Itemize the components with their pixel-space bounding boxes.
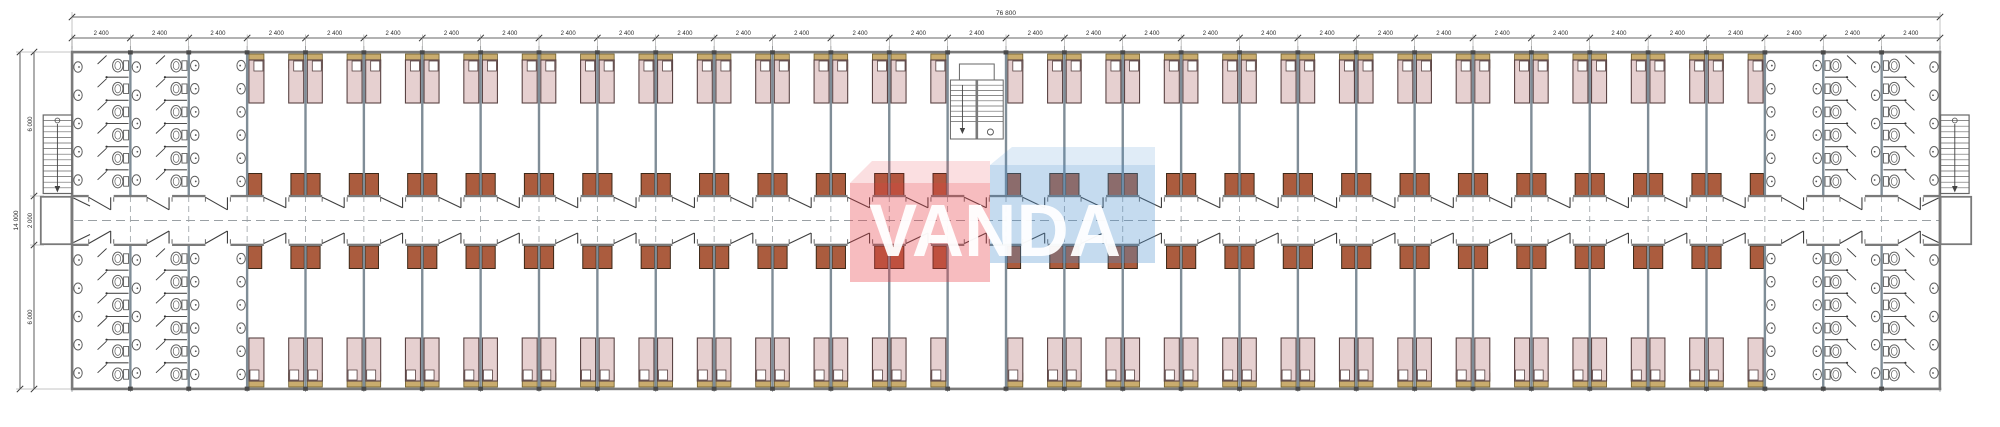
desk [249, 54, 264, 60]
pillow [775, 370, 784, 380]
partition-wall [188, 52, 190, 197]
partition-wall [246, 52, 248, 197]
toilet-tank [182, 153, 187, 163]
partition-wall [1822, 52, 1824, 197]
pillow [312, 61, 321, 71]
wardrobe [1533, 246, 1546, 269]
desk [289, 381, 304, 387]
desk [1533, 54, 1548, 60]
desk [1281, 381, 1296, 387]
pillow [1417, 370, 1426, 380]
toilet-tank [124, 323, 129, 333]
pillow [1520, 61, 1529, 71]
pillow [483, 370, 492, 380]
corridor-wall-segment [289, 244, 322, 246]
partition-wall [830, 245, 832, 390]
partition-wall [1413, 245, 1415, 390]
desk [658, 54, 673, 60]
partition-wall [1413, 52, 1415, 197]
desk [1456, 54, 1471, 60]
partition-wall [713, 52, 715, 197]
dim-left-seg-mid-label: 2 000 [28, 212, 34, 228]
wardrobe [1416, 174, 1429, 197]
corridor-wall-segment [347, 195, 380, 197]
desk [464, 54, 479, 60]
corridor-wall-segment [230, 195, 263, 197]
pillow [425, 370, 434, 380]
dim-bay-label: 2 400 [327, 31, 343, 37]
desk [756, 381, 771, 387]
pillow [1632, 370, 1641, 380]
pillow [487, 61, 496, 71]
corridor-wall-segment [1281, 244, 1314, 246]
pillow [1593, 370, 1602, 380]
pillow [604, 61, 613, 71]
pillow [410, 61, 419, 71]
pillow [308, 370, 317, 380]
sink [237, 369, 245, 379]
sink [1813, 130, 1821, 140]
partition-wall [1238, 245, 1240, 390]
pillow [644, 61, 653, 71]
pillow [1188, 61, 1197, 71]
partition-wall [1530, 245, 1532, 390]
sink [237, 323, 245, 333]
pillow [1457, 370, 1466, 380]
toilet-tank [124, 153, 129, 163]
corridor-wall-segment [581, 244, 614, 246]
sink [237, 107, 245, 117]
desk [1592, 54, 1607, 60]
pillow [1534, 370, 1543, 380]
pillow [838, 61, 847, 71]
partition-wall [771, 52, 773, 197]
desk [1475, 381, 1490, 387]
wardrobe [657, 174, 670, 197]
desk [1592, 381, 1607, 387]
pillow [1053, 61, 1062, 71]
partition-wall [1880, 52, 1882, 197]
wardrobe [540, 174, 553, 197]
sink [74, 118, 82, 128]
corridor-wall-segment [814, 195, 847, 197]
pillow [663, 61, 672, 71]
wardrobe [700, 246, 713, 269]
wardrobe [408, 174, 421, 197]
wardrobe [524, 246, 537, 269]
desk [366, 381, 381, 387]
wardrobe [408, 246, 421, 269]
sink [1813, 84, 1821, 94]
dim-bay-label: 2 400 [502, 31, 518, 37]
sink [1767, 107, 1775, 117]
sink [132, 62, 140, 72]
dim-bay-label: 2 400 [386, 31, 402, 37]
wardrobe [1225, 174, 1238, 197]
sink [74, 255, 82, 265]
sink [1767, 300, 1775, 310]
pillow [1403, 61, 1412, 71]
wardrobe [1649, 246, 1662, 269]
sink [1930, 368, 1938, 378]
pillow [523, 370, 532, 380]
desk [482, 54, 497, 60]
sink [1871, 62, 1879, 72]
sink [1813, 323, 1821, 333]
desk [1690, 381, 1705, 387]
dim-bay-label: 2 400 [94, 31, 110, 37]
desk [405, 381, 420, 387]
dim-top-total-label: 76 800 [996, 10, 1016, 17]
corridor-wall-segment [1690, 244, 1723, 246]
pillow [1071, 61, 1080, 71]
desk [1748, 381, 1763, 387]
toilet-tank [182, 130, 187, 140]
sink [1813, 60, 1821, 70]
dim-bay-label: 2 400 [1787, 31, 1803, 37]
sink [1767, 60, 1775, 70]
wardrobe [700, 174, 713, 197]
partition-wall [1238, 52, 1240, 197]
corridor-wall-segment [1923, 195, 1940, 197]
dim-bay-label: 2 400 [444, 31, 460, 37]
partition-wall [596, 245, 598, 390]
pillow [1636, 61, 1645, 71]
sink [74, 62, 82, 72]
desk [1573, 54, 1588, 60]
wardrobe [1182, 246, 1195, 269]
pillow [1107, 370, 1116, 380]
pillow [527, 61, 536, 71]
wardrobe [1517, 246, 1530, 269]
wardrobe [423, 174, 436, 197]
pillow [702, 61, 711, 71]
desk [1631, 54, 1646, 60]
wardrobe [1634, 246, 1647, 269]
wardrobe [1708, 246, 1721, 269]
pillow [586, 61, 595, 71]
dim-bay-label: 2 400 [1144, 31, 1160, 37]
partition-wall [188, 245, 190, 390]
sink [132, 340, 140, 350]
wardrobe [1474, 174, 1487, 197]
sink [237, 153, 245, 163]
desk [1358, 54, 1373, 60]
desk [405, 54, 420, 60]
desk [581, 381, 596, 387]
corridor-wall-segment [347, 244, 380, 246]
partition-wall [1822, 245, 1824, 390]
desk [814, 381, 829, 387]
desk [1106, 54, 1121, 60]
wardrobe [482, 174, 495, 197]
partition-wall [538, 245, 540, 390]
pillow [1695, 61, 1704, 71]
dim-bay-label: 2 400 [1436, 31, 1452, 37]
desk [1008, 381, 1023, 387]
pillow [757, 370, 766, 380]
sink [191, 107, 199, 117]
corridor-wall-segment [1281, 195, 1314, 197]
dim-bay-label: 2 400 [1203, 31, 1219, 37]
wardrobe [1575, 174, 1588, 197]
wardrobe [1357, 246, 1370, 269]
desk [541, 381, 556, 387]
entry-vestibule-left [41, 197, 72, 244]
dim-bay-label: 2 400 [1845, 31, 1861, 37]
wardrobe [832, 246, 845, 269]
desk [716, 54, 731, 60]
toilet-tank [1825, 323, 1830, 333]
dim-bay-label: 2 400 [1553, 31, 1569, 37]
sink [237, 253, 245, 263]
desk [1223, 54, 1238, 60]
desk [1008, 54, 1023, 60]
corridor-wall-segment [814, 244, 847, 246]
corridor-wall-segment [1807, 195, 1840, 197]
partition-wall [1297, 245, 1299, 390]
desk [1066, 381, 1081, 387]
sink [74, 175, 82, 185]
wardrobe [641, 174, 654, 197]
wardrobe [599, 246, 612, 269]
desk [1183, 54, 1198, 60]
wardrobe [365, 174, 378, 197]
desk [482, 381, 497, 387]
sink [1871, 175, 1879, 185]
toilet-tank [1883, 130, 1888, 140]
wardrobe [758, 246, 771, 269]
sink [237, 84, 245, 94]
vanda-watermark: VANDA [850, 147, 1155, 282]
sink [1930, 62, 1938, 72]
desk [599, 54, 614, 60]
dim-bay-label: 2 400 [1261, 31, 1277, 37]
sink [1871, 118, 1879, 128]
pillow [1282, 370, 1291, 380]
sink [74, 283, 82, 293]
corridor-wall-segment [1456, 195, 1489, 197]
corridor-wall-segment [1164, 244, 1197, 246]
desk [1631, 381, 1646, 387]
desk [872, 381, 887, 387]
partition-wall [1472, 245, 1474, 390]
sink [191, 323, 199, 333]
wardrobe [816, 174, 829, 197]
corridor-wall-segment [1865, 195, 1898, 197]
pillow [779, 61, 788, 71]
corridor-wall-segment [1340, 244, 1373, 246]
dim-bay-label: 2 400 [1320, 31, 1336, 37]
toilet-tank [1825, 177, 1830, 187]
corridor-wall-segment [114, 244, 147, 246]
sink [1930, 118, 1938, 128]
wardrobe [1575, 246, 1588, 269]
corridor-wall-segment [1164, 195, 1197, 197]
corridor-wall-segment [114, 195, 147, 197]
dim-bay-label: 2 400 [677, 31, 693, 37]
toilet-tank [182, 300, 187, 310]
desk [1300, 381, 1315, 387]
sink [191, 346, 199, 356]
toilet-tank [1883, 277, 1888, 287]
partition-wall [1647, 245, 1649, 390]
pillow [1301, 370, 1310, 380]
dim-bay-label: 2 400 [269, 31, 285, 37]
dim-bay-label: 2 400 [794, 31, 810, 37]
partition-wall [129, 52, 131, 197]
entry-vestibule-right [1941, 197, 1972, 244]
sink [1871, 340, 1879, 350]
wardrobe [1167, 246, 1180, 269]
pillow [1749, 370, 1758, 380]
wardrobe [1591, 174, 1604, 197]
pillow [1651, 370, 1660, 380]
pillow [717, 370, 726, 380]
wardrobe [1241, 174, 1254, 197]
desk [1456, 381, 1471, 387]
desk [1281, 54, 1296, 60]
partition-wall [363, 52, 365, 197]
wardrobe [599, 174, 612, 197]
dim-bay-label: 2 400 [1028, 31, 1044, 37]
partition-wall [1355, 245, 1357, 390]
desk [1515, 381, 1530, 387]
corridor-wall-segment [1631, 244, 1664, 246]
wardrobe [1342, 174, 1355, 197]
sink [1767, 323, 1775, 333]
toilet-tank [1883, 370, 1888, 380]
sink [1813, 153, 1821, 163]
desk [1650, 54, 1665, 60]
desk [1223, 381, 1238, 387]
wardrobe [365, 246, 378, 269]
pillow [1691, 370, 1700, 380]
wardrobe [307, 246, 320, 269]
desk [307, 381, 322, 387]
corridor-wall-segment [1690, 195, 1723, 197]
sink [132, 255, 140, 265]
partition-wall [655, 52, 657, 197]
pillow [600, 370, 609, 380]
sink [191, 253, 199, 263]
wardrobe [1400, 246, 1413, 269]
sink [1813, 300, 1821, 310]
pillow [877, 61, 886, 71]
dim-bay-label: 2 400 [1495, 31, 1511, 37]
pillow [1753, 61, 1762, 71]
wardrobe [1283, 174, 1296, 197]
desk [1164, 54, 1179, 60]
watermark-red-top-face [850, 161, 990, 183]
toilet-tank [182, 254, 187, 264]
sink [1813, 176, 1821, 186]
pillow [406, 370, 415, 380]
middle-stair-landing [959, 64, 994, 80]
dim-bay-label: 2 400 [853, 31, 869, 37]
pillow [1516, 370, 1525, 380]
pillow [254, 61, 263, 71]
wardrobe [1692, 174, 1705, 197]
desk [1183, 381, 1198, 387]
sink [237, 277, 245, 287]
desk [1048, 54, 1063, 60]
corridor-wall-segment [1807, 244, 1840, 246]
desk [1300, 54, 1315, 60]
pillow [896, 61, 905, 71]
desk [249, 381, 264, 387]
sink [1767, 130, 1775, 140]
toilet-tank [182, 346, 187, 356]
partition-wall [246, 245, 248, 390]
wardrobe [1342, 246, 1355, 269]
wardrobe [307, 174, 320, 197]
sink [1767, 277, 1775, 287]
corridor-wall-segment [1923, 244, 1940, 246]
sink [191, 84, 199, 94]
wardrobe [641, 246, 654, 269]
desk [891, 54, 906, 60]
partition-wall [1589, 245, 1591, 390]
corridor-wall-segment [1515, 244, 1548, 246]
sink [1767, 176, 1775, 186]
corridor-wall-segment [1340, 195, 1373, 197]
pillow [761, 61, 770, 71]
wardrobe [816, 246, 829, 269]
sink [1813, 277, 1821, 287]
dim-bay-label: 2 400 [969, 31, 985, 37]
partition-wall [421, 245, 423, 390]
corridor-wall-segment [464, 195, 497, 197]
corridor-wall-segment [72, 195, 89, 197]
partition-wall [771, 245, 773, 390]
sink [132, 368, 140, 378]
toilet-tank [124, 84, 129, 94]
toilet-tank [1825, 130, 1830, 140]
wardrobe [1182, 174, 1195, 197]
wardrobe [524, 174, 537, 197]
dim-bay-label: 2 400 [561, 31, 577, 37]
desk [774, 54, 789, 60]
toilet-tank [124, 177, 129, 187]
corridor-wall-segment [289, 195, 322, 197]
partition-wall [304, 245, 306, 390]
corridor-wall-segment [1865, 244, 1898, 246]
desk [639, 381, 654, 387]
toilet-tank [1883, 254, 1888, 264]
wardrobe [1750, 174, 1763, 197]
sink [74, 90, 82, 100]
toilet-tank [182, 177, 187, 187]
wardrobe [540, 246, 553, 269]
desk [833, 54, 848, 60]
sink [237, 176, 245, 186]
corridor-wall-segment [697, 244, 730, 246]
wardrobe [1416, 246, 1429, 269]
watermark-text: VANDA [869, 189, 1121, 272]
dim-bay-label: 2 400 [1086, 31, 1102, 37]
wardrobe [715, 246, 728, 269]
desk [307, 54, 322, 60]
partition-wall [1705, 52, 1707, 197]
partition-wall [1355, 52, 1357, 197]
pillow [1111, 61, 1120, 71]
toilet-tank [1825, 84, 1830, 94]
desk [541, 54, 556, 60]
desk [522, 54, 537, 60]
toilet-tank [182, 277, 187, 287]
pillow [1126, 370, 1135, 380]
